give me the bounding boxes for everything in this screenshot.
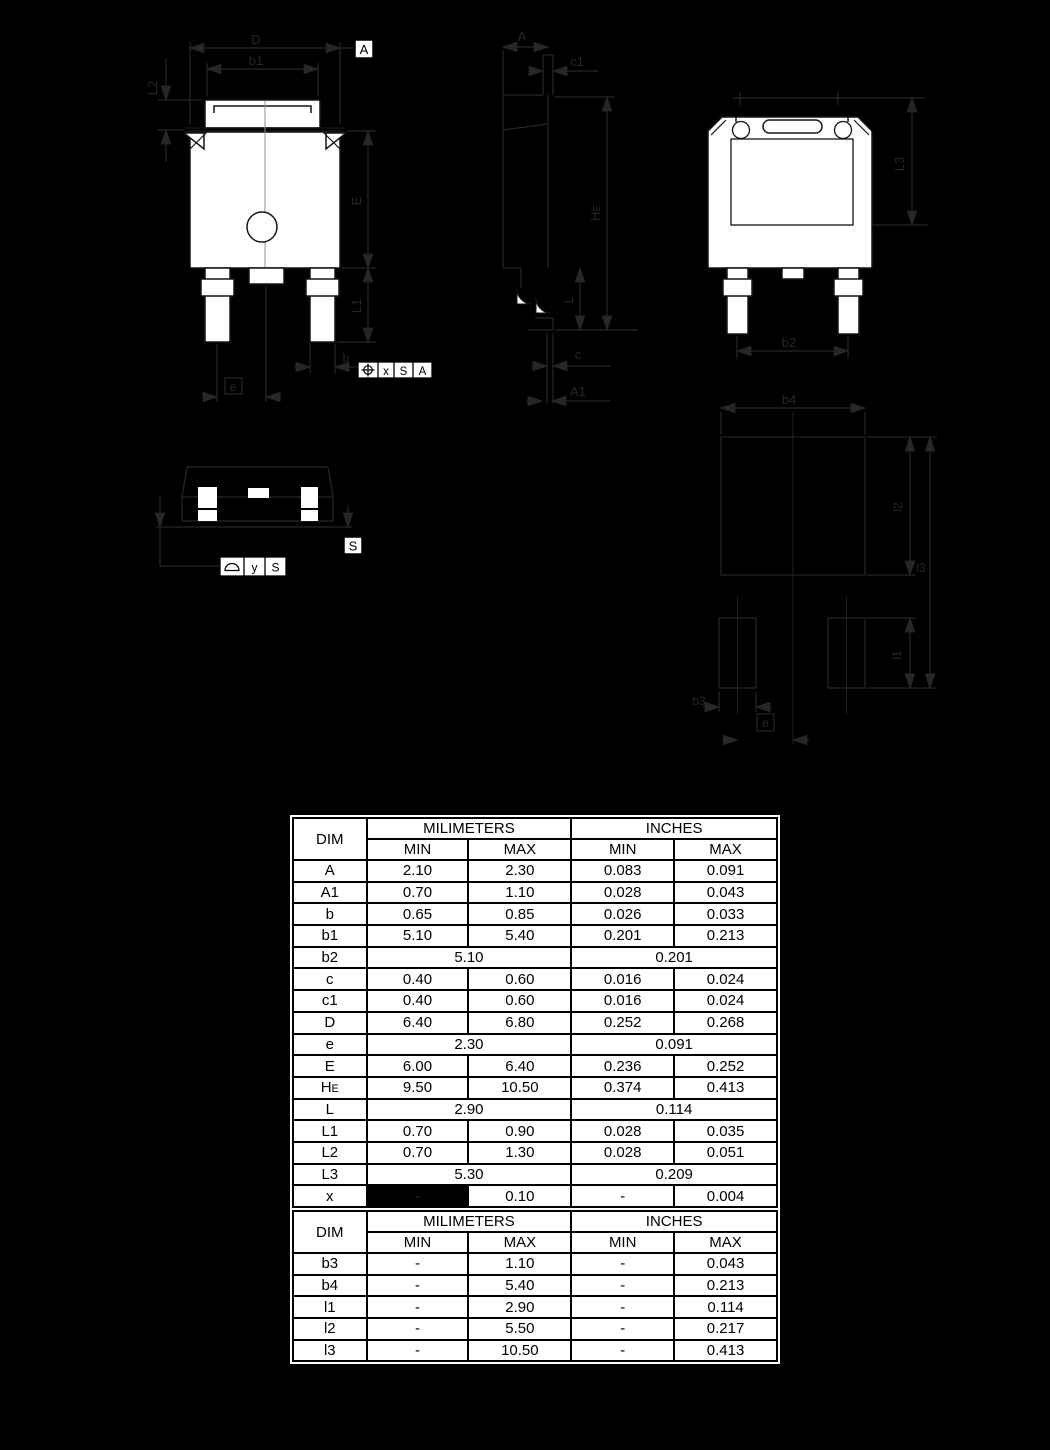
bottom-view-outline <box>156 467 352 566</box>
dim-label-L: L <box>561 296 576 303</box>
col-header-max: MAX <box>674 839 777 860</box>
table-row: l1-2.90-0.114 <box>293 1296 777 1318</box>
col-header-dim: DIM <box>293 818 367 860</box>
cell-in-max: 0.268 <box>674 1012 777 1034</box>
back-view-body <box>708 117 872 334</box>
table-row: b0.650.850.0260.033 <box>293 903 777 925</box>
svg-text:S: S <box>400 366 408 378</box>
cell-dim: l3 <box>293 1340 367 1362</box>
cell-in-max: 0.004 <box>674 1185 777 1207</box>
dim-label-A: A <box>518 29 527 44</box>
cell-in-min: 0.028 <box>571 882 674 904</box>
cell-mm-max: 5.40 <box>468 1275 571 1297</box>
dim-label-c1: c1 <box>570 54 584 69</box>
cell-mm-min: 5.10 <box>367 925 469 947</box>
cell-mm-min: - <box>367 1318 469 1340</box>
dim-label-b1: b1 <box>249 53 263 68</box>
cell-in-max: 0.114 <box>674 1296 777 1318</box>
datum-flag-A: A <box>355 40 373 58</box>
cell-in-min: 0.016 <box>571 968 674 990</box>
table-row: E6.006.400.2360.252 <box>293 1055 777 1077</box>
cell-mm-value: 2.90 <box>367 1099 572 1121</box>
dim-label-D: D <box>251 32 260 47</box>
table-row: L35.300.209 <box>293 1164 777 1186</box>
cell-dim: E <box>293 1055 367 1077</box>
col-header-millimeters: MILIMETERS <box>367 818 572 839</box>
cell-in-max: 0.043 <box>674 1253 777 1275</box>
cell-dim: l1 <box>293 1296 367 1318</box>
col-header-min: MIN <box>571 839 674 860</box>
header-row: DIMMILIMETERSINCHES <box>293 1211 777 1232</box>
dim-label-E: E <box>349 196 364 205</box>
cell-in-min: - <box>571 1296 674 1318</box>
table-row: x-0.10-0.004 <box>293 1185 777 1207</box>
table-row: l2-5.50-0.217 <box>293 1318 777 1340</box>
table-row: L20.701.300.0280.051 <box>293 1142 777 1164</box>
svg-text:y: y <box>252 561 258 575</box>
cell-mm-max: 6.40 <box>468 1055 571 1077</box>
dim-label-b: b <box>343 351 350 365</box>
cell-mm-min: - <box>367 1275 469 1297</box>
cell-dim: b4 <box>293 1275 367 1297</box>
window-notch-left <box>733 122 750 139</box>
cell-in-max: 0.217 <box>674 1318 777 1340</box>
cell-dim: b <box>293 903 367 925</box>
cell-in-min: - <box>571 1253 674 1275</box>
drawing-canvas: D b1 L2 E L1 b e <box>0 0 1050 790</box>
fcf-position: x S A <box>358 362 432 378</box>
dim-label-b2: b2 <box>782 335 796 350</box>
cell-mm-min: - <box>367 1340 469 1362</box>
cell-in-min: 0.026 <box>571 903 674 925</box>
cell-in-min: 0.201 <box>571 925 674 947</box>
cell-mm-max: 10.50 <box>468 1077 571 1099</box>
dim-label-L3: L3 <box>892 157 907 171</box>
footprint-dimensions <box>703 437 937 740</box>
col-header-min: MIN <box>367 1232 469 1253</box>
table-row: HE9.5010.500.3740.413 <box>293 1077 777 1099</box>
cell-mm-max: 1.30 <box>468 1142 571 1164</box>
cell-dim: HE <box>293 1077 367 1099</box>
cell-mm-max: 0.60 <box>468 990 571 1012</box>
cell-dim: b3 <box>293 1253 367 1275</box>
cell-in-min: - <box>571 1318 674 1340</box>
cell-mm-value: 5.30 <box>367 1164 572 1186</box>
datum-flag-S: S <box>344 537 362 554</box>
table-row: A2.102.300.0830.091 <box>293 860 777 882</box>
cell-mm-max: 0.60 <box>468 968 571 990</box>
cell-mm-min: 0.70 <box>367 882 469 904</box>
dim-label-l2: l2 <box>891 502 905 512</box>
cell-in-max: 0.413 <box>674 1340 777 1362</box>
table-row: L2.900.114 <box>293 1099 777 1121</box>
cell-mm-min: 6.40 <box>367 1012 469 1034</box>
cell-mm-value: 5.10 <box>367 947 572 969</box>
cell-in-max: 0.252 <box>674 1055 777 1077</box>
cell-mm-max: 0.90 <box>468 1120 571 1142</box>
cell-in-max: 0.213 <box>674 925 777 947</box>
window-notch-right <box>835 122 852 139</box>
table-row: e2.300.091 <box>293 1034 777 1056</box>
cell-mm-max: 10.50 <box>468 1340 571 1362</box>
table-row: A10.701.100.0280.043 <box>293 882 777 904</box>
front-view-body <box>184 100 346 342</box>
col-header-max: MAX <box>468 839 571 860</box>
package-outline-drawing-page: { "page": {"background": "#000000", "dra… <box>0 0 1050 1450</box>
cell-in-max: 0.033 <box>674 903 777 925</box>
pad-left <box>198 487 217 508</box>
cell-mm-min: 0.40 <box>367 968 469 990</box>
cell-in-min: - <box>571 1340 674 1362</box>
col-header-max: MAX <box>674 1232 777 1253</box>
dim-label-l1: l1 <box>890 650 904 660</box>
bottom-view-pads <box>198 487 318 521</box>
cell-in-max: 0.035 <box>674 1120 777 1142</box>
footprint-view: l2 l3 l1 b3 e <box>692 412 937 744</box>
footprint-outline <box>719 412 865 744</box>
cell-dim: b1 <box>293 925 367 947</box>
table-row: b15.105.400.2010.213 <box>293 925 777 947</box>
col-header-min: MIN <box>367 839 469 860</box>
dim-label-c: c <box>575 347 582 362</box>
dim-label-e: e <box>762 716 769 730</box>
cell-in-min: 0.028 <box>571 1142 674 1164</box>
fcf-profile: y S <box>220 557 286 576</box>
cell-in-max: 0.024 <box>674 968 777 990</box>
cell-dim: A1 <box>293 882 367 904</box>
back-view: L3 b2 b4 <box>708 92 928 435</box>
cell-mm-max: 1.10 <box>468 882 571 904</box>
cell-in-min: 0.374 <box>571 1077 674 1099</box>
cell-mm-min: 6.00 <box>367 1055 469 1077</box>
table-row: b4-5.40-0.213 <box>293 1275 777 1297</box>
cell-in-min: 0.083 <box>571 860 674 882</box>
pad-center <box>248 488 269 498</box>
dim-label-A1: A1 <box>570 384 586 399</box>
cell-mm-min: 2.10 <box>367 860 469 882</box>
cell-dim: x <box>293 1185 367 1207</box>
dimension-table-main: DIMMILIMETERSINCHESMINMAXMINMAXA2.102.30… <box>290 815 780 1232</box>
dim-label-HE: HE <box>588 205 603 221</box>
col-header-millimeters: MILIMETERS <box>367 1211 572 1232</box>
svg-text:A: A <box>419 366 427 378</box>
lead-center-stub <box>249 268 284 284</box>
cell-in-value: 0.114 <box>571 1099 777 1121</box>
dim-label-L1: L1 <box>349 299 364 313</box>
table-row: c0.400.600.0160.024 <box>293 968 777 990</box>
cell-mm-min: 0.70 <box>367 1120 469 1142</box>
cell-in-max: 0.091 <box>674 860 777 882</box>
cell-dim: A <box>293 860 367 882</box>
dim-label-b3: b3 <box>692 694 706 708</box>
dim-label-e: e <box>230 380 237 394</box>
svg-text:A: A <box>360 42 369 57</box>
cell-mm-max: 2.30 <box>468 860 571 882</box>
cell-mm-max: 0.85 <box>468 903 571 925</box>
front-view: D b1 L2 E L1 b e <box>145 32 432 402</box>
side-view-dimensions <box>503 47 638 401</box>
table-row: c10.400.600.0160.024 <box>293 990 777 1012</box>
col-header-min: MIN <box>571 1232 674 1253</box>
lead-bend-wedges <box>517 288 551 313</box>
svg-text:x: x <box>383 366 389 378</box>
lead-left <box>727 268 748 334</box>
dim-label-b4: b4 <box>782 392 796 407</box>
cell-in-min: 0.236 <box>571 1055 674 1077</box>
mounting-hole <box>247 212 277 242</box>
table-row: b3-1.10-0.043 <box>293 1253 777 1275</box>
cell-in-max: 0.043 <box>674 882 777 904</box>
cell-mm-max: 0.10 <box>468 1185 571 1207</box>
cell-in-value: 0.209 <box>571 1164 777 1186</box>
cell-in-min: 0.028 <box>571 1120 674 1142</box>
cell-mm-min: 0.65 <box>367 903 469 925</box>
cell-in-min: - <box>571 1185 674 1207</box>
cell-in-max: 0.051 <box>674 1142 777 1164</box>
col-header-inches: INCHES <box>571 818 777 839</box>
cell-dim: c1 <box>293 990 367 1012</box>
cell-in-max: 0.413 <box>674 1077 777 1099</box>
cell-in-value: 0.201 <box>571 947 777 969</box>
cell-dim: D <box>293 1012 367 1034</box>
cell-mm-min: - <box>367 1253 469 1275</box>
svg-text:S: S <box>349 539 358 554</box>
cell-dim: l2 <box>293 1318 367 1340</box>
side-view-outline <box>503 50 553 404</box>
col-header-dim: DIM <box>293 1211 367 1253</box>
cell-dim: e <box>293 1034 367 1056</box>
cell-dim: b2 <box>293 947 367 969</box>
cell-in-max: 0.024 <box>674 990 777 1012</box>
col-header-max: MAX <box>468 1232 571 1253</box>
lead-right <box>838 268 859 334</box>
cell-in-min: 0.016 <box>571 990 674 1012</box>
cell-in-min: - <box>571 1275 674 1297</box>
lead-center-stub <box>782 268 804 279</box>
cell-mm-min: - <box>367 1296 469 1318</box>
svg-text:S: S <box>271 561 279 575</box>
cell-mm-value: 2.30 <box>367 1034 572 1056</box>
dim-label-L2: L2 <box>145 81 160 95</box>
cell-in-max: 0.213 <box>674 1275 777 1297</box>
cell-mm-min: - <box>367 1185 469 1207</box>
cell-dim: L <box>293 1099 367 1121</box>
cell-mm-min: 9.50 <box>367 1077 469 1099</box>
cell-mm-max: 6.80 <box>468 1012 571 1034</box>
cell-dim: L3 <box>293 1164 367 1186</box>
bottom-view: S y S <box>156 467 362 576</box>
table-row: L10.700.900.0280.035 <box>293 1120 777 1142</box>
cell-in-value: 0.091 <box>571 1034 777 1056</box>
cell-mm-max: 1.10 <box>468 1253 571 1275</box>
exposed-pad-window <box>731 139 853 225</box>
cell-mm-max: 2.90 <box>468 1296 571 1318</box>
pad-right <box>301 487 318 508</box>
dimension-table-footprint: DIMMILIMETERSINCHESMINMAXMINMAXb3-1.10-0… <box>290 1208 780 1364</box>
dim-label-l3: l3 <box>916 561 926 575</box>
cell-mm-max: 5.50 <box>468 1318 571 1340</box>
table-row: l3-10.50-0.413 <box>293 1340 777 1362</box>
tab-slot <box>763 120 822 133</box>
table-row: b25.100.201 <box>293 947 777 969</box>
side-view: A c1 HE L c A1 <box>503 29 638 404</box>
cell-mm-min: 0.70 <box>367 1142 469 1164</box>
cell-in-min: 0.252 <box>571 1012 674 1034</box>
cell-dim: c <box>293 968 367 990</box>
table-row: D6.406.800.2520.268 <box>293 1012 777 1034</box>
col-header-inches: INCHES <box>571 1211 777 1232</box>
cell-mm-min: 0.40 <box>367 990 469 1012</box>
header-row: DIMMILIMETERSINCHES <box>293 818 777 839</box>
cell-dim: L2 <box>293 1142 367 1164</box>
cell-dim: L1 <box>293 1120 367 1142</box>
cell-mm-max: 5.40 <box>468 925 571 947</box>
